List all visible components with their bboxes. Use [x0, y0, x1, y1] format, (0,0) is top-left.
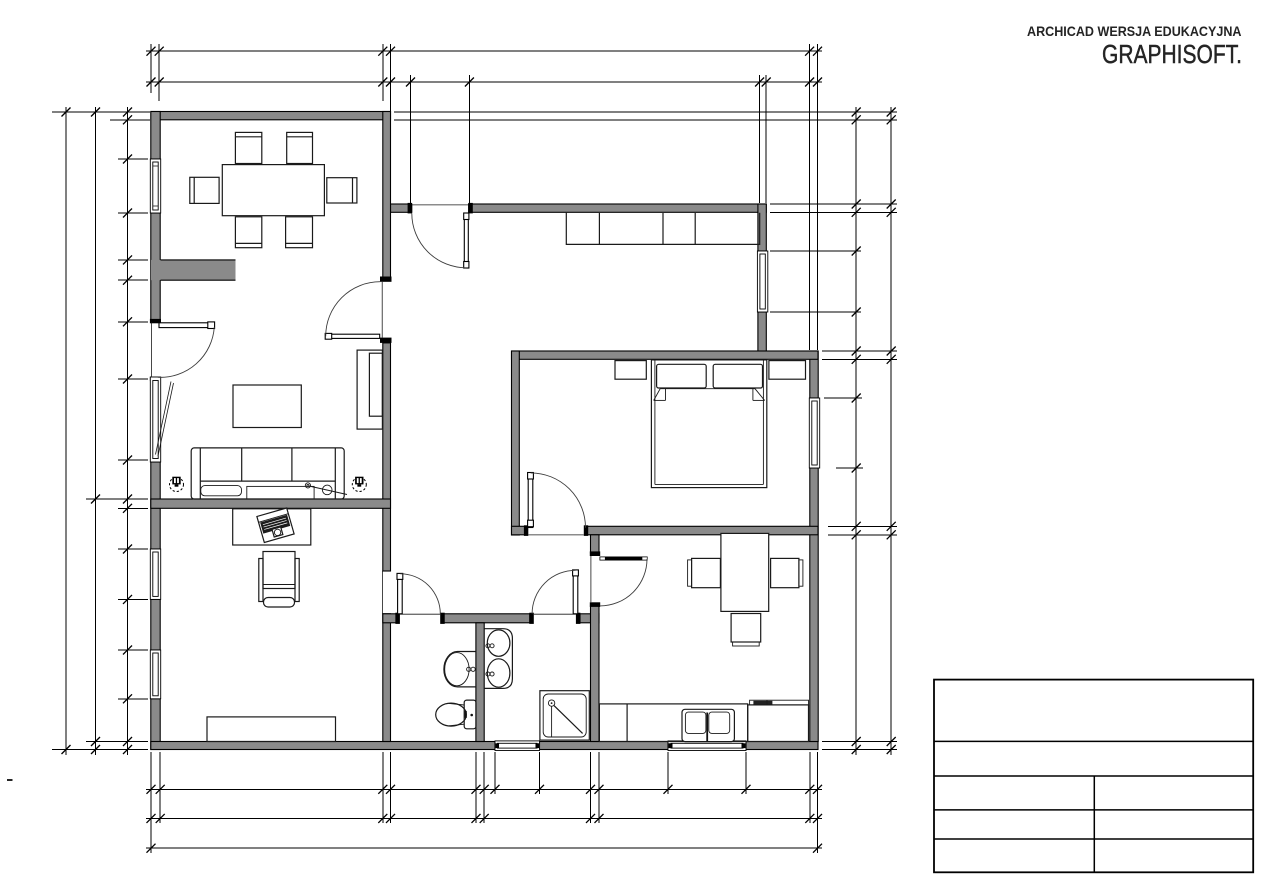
svg-text:GRAPHISOFT.: GRAPHISOFT. — [1102, 41, 1242, 69]
svg-text:ARCHICAD WERSJA EDUKACYJNA: ARCHICAD WERSJA EDUKACYJNA — [1027, 24, 1242, 39]
